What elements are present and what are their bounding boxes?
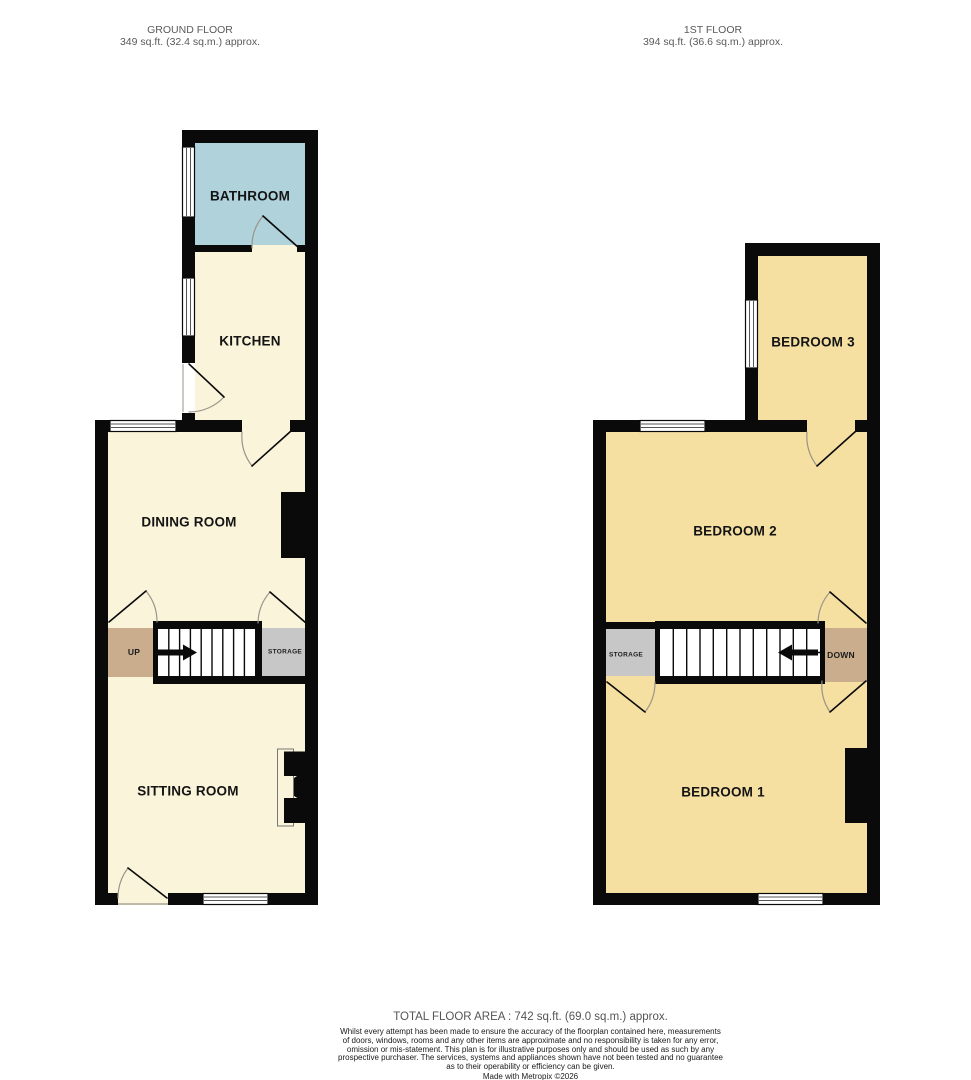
ground-staircase (153, 621, 262, 684)
bathroom-label: BATHROOM (210, 189, 290, 204)
bathroom-window (183, 147, 195, 217)
total-floor-area: TOTAL FLOOR AREA : 742 sq.ft. (69.0 sq.m… (338, 1011, 723, 1023)
ground-storage-label: STORAGE (268, 649, 302, 656)
floorplan-drawing (0, 0, 971, 1080)
sitting-room-label: SITTING ROOM (137, 784, 238, 799)
kitchen-dining-opening (242, 420, 290, 432)
first-staircase (655, 621, 825, 684)
bedroom1-window (758, 894, 823, 905)
ground-floor-header: GROUND FLOOR 349 sq.ft. (32.4 sq.m.) app… (120, 25, 260, 48)
disclaimer-text: Whilst every attempt has been made to en… (338, 1028, 723, 1072)
kitchen-window (183, 278, 195, 336)
first-storage-label: STORAGE (609, 652, 643, 659)
bedroom2-label: BEDROOM 2 (693, 524, 777, 539)
bedroom1-label: BEDROOM 1 (681, 785, 765, 800)
bedroom1-chimney-breast (845, 748, 867, 823)
bedroom3-door-opening (807, 420, 855, 432)
dining-room-label: DINING ROOM (141, 515, 236, 530)
footer: TOTAL FLOOR AREA : 742 sq.ft. (69.0 sq.m… (338, 1011, 723, 1080)
ground-floor-area: 349 sq.ft. (32.4 sq.m.) approx. (120, 37, 260, 49)
first-storage-top-wall (606, 622, 655, 629)
down-label: DOWN (827, 650, 855, 660)
metropix-credit: Made with Metropix ©2026 (338, 1073, 723, 1080)
floorplan-page: GROUND FLOOR 349 sq.ft. (32.4 sq.m.) app… (0, 0, 971, 1080)
first-floor-header: 1ST FLOOR 394 sq.ft. (36.6 sq.m.) approx… (643, 25, 783, 48)
dining-room-window (110, 421, 176, 432)
ground-floor-title: GROUND FLOOR (120, 25, 260, 37)
first-floor-title: 1ST FLOOR (643, 25, 783, 37)
first-floor-area: 394 sq.ft. (36.6 sq.m.) approx. (643, 37, 783, 49)
up-label: UP (128, 647, 140, 657)
bedroom2-window (640, 421, 705, 432)
bedroom3-window (746, 300, 758, 368)
kitchen-label: KITCHEN (219, 334, 280, 349)
bathroom-door-opening (252, 245, 297, 252)
ground-storage-bottom-wall (262, 676, 305, 684)
bedroom3-label: BEDROOM 3 (771, 335, 855, 350)
kitchen-side-door-opening (182, 363, 195, 413)
front-door-opening (118, 893, 168, 905)
sitting-room-window (203, 894, 268, 905)
sitting-room-fireplace (278, 749, 319, 826)
dining-chimney-breast (281, 492, 305, 558)
